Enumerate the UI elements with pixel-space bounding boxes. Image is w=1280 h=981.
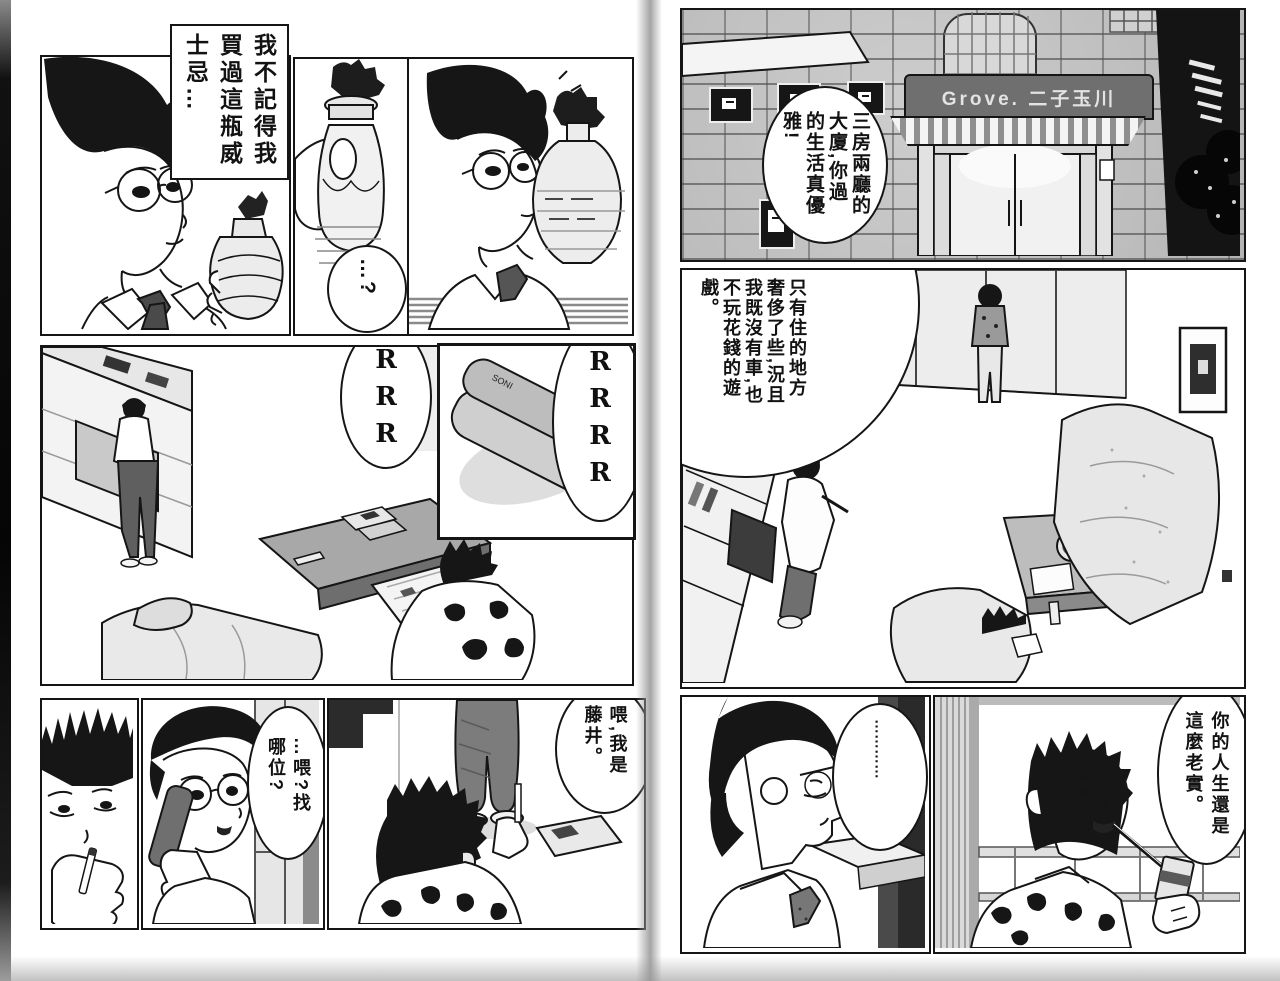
manga-spread: 我不記得我買過這瓶威士忌… …? xyxy=(0,0,1280,981)
speech-text-fujii: 喂,我是藤井。 xyxy=(580,705,630,793)
panel-bottle-closeup: …? xyxy=(293,57,409,336)
candy-stick xyxy=(1113,825,1163,867)
thumb xyxy=(330,139,356,179)
sofa xyxy=(102,598,322,680)
speech-text-luxury: 只有住的地方奢侈了些,況且我既沒有車,也不玩花錢的遊戲。 xyxy=(698,278,808,408)
speech-bubble-mansion: 三房兩廳的大廈,你過的生活真優雅! xyxy=(762,86,888,244)
speech-bubble-silence: ………… xyxy=(832,703,928,851)
hair xyxy=(427,65,548,161)
canopy xyxy=(682,32,868,76)
right-page: Grove. 二子玉川 三房兩廳的大廈,你過的生活真優雅! xyxy=(652,0,1280,981)
paper xyxy=(1030,563,1073,594)
building-sign-text: Grove. 二子玉川 xyxy=(942,84,1116,111)
panel-man-and-bottle xyxy=(407,57,634,336)
wall-frame xyxy=(1180,328,1226,412)
entrance xyxy=(918,140,1114,256)
dark-corner xyxy=(329,700,393,748)
speech-bubble-whisky: 我不記得我買過這瓶威士忌… xyxy=(170,24,289,180)
speech-text-whisky: 我不記得我買過這瓶威士忌… xyxy=(179,33,281,171)
wall-outlet xyxy=(1222,570,1232,582)
panel-apartment-interior: 只有住的地方奢侈了些,況且我既沒有車,也不玩花錢的遊戲。 xyxy=(680,268,1246,689)
panel-building-exterior: Grove. 二子玉川 三房兩廳的大廈,你過的生活真優雅! xyxy=(680,8,1246,262)
artwork-man-bottle-shelf xyxy=(409,59,628,330)
bottle xyxy=(1049,602,1060,625)
entrance-plaque xyxy=(1100,160,1114,180)
mouth xyxy=(217,826,232,835)
entrance-awning xyxy=(890,116,1146,146)
speech-bubble-hello: …喂?找哪位? xyxy=(247,706,325,860)
speech-bubble-question: …? xyxy=(327,245,407,333)
scan-edge-left xyxy=(0,0,11,981)
sfx-text-rrr: RRR xyxy=(371,345,401,449)
panel-fujii-answers: 喂,我是藤井。 xyxy=(327,698,646,930)
armchair xyxy=(891,588,1042,682)
spiky-hair xyxy=(42,708,133,786)
speech-text-question: …? xyxy=(355,258,379,320)
blinds xyxy=(935,697,969,948)
hand xyxy=(1153,895,1199,933)
speech-text-mansion: 三房兩廳的大廈,你過的生活真優雅! xyxy=(779,111,871,219)
speech-text-hello: …喂?找哪位? xyxy=(263,737,313,829)
cigarette xyxy=(515,784,521,822)
building-sign: Grove. 二子玉川 xyxy=(904,74,1154,120)
panel-face-cigarette xyxy=(40,698,139,930)
book xyxy=(1012,634,1042,657)
shirt-collar xyxy=(102,289,150,329)
whisky-bottle-shelf xyxy=(533,87,625,263)
artwork-face-cigarette xyxy=(42,700,133,924)
panel-phone-closeup: SONI RRRR xyxy=(437,343,636,540)
panel-man-on-phone: …喂?找哪位? xyxy=(141,698,325,930)
panel-smiling-man: 你的人生還是這麼老實。 xyxy=(933,695,1246,954)
left-page: 我不記得我買過這瓶威士忌… …? xyxy=(12,0,646,981)
shirt xyxy=(704,870,840,948)
sfx-text-rrrr: RRRR xyxy=(585,347,615,497)
magazine-floor xyxy=(537,816,621,856)
speech-text-silence: ………… xyxy=(872,719,889,835)
page-fold-shadow xyxy=(636,0,662,981)
speech-text-honest: 你的人生還是這麼老實。 xyxy=(1181,711,1233,837)
horse-stopper xyxy=(331,59,385,99)
whisky-bottle xyxy=(207,191,282,325)
crouching-man xyxy=(778,452,848,628)
panel-profile-silence: ………… xyxy=(680,695,931,954)
